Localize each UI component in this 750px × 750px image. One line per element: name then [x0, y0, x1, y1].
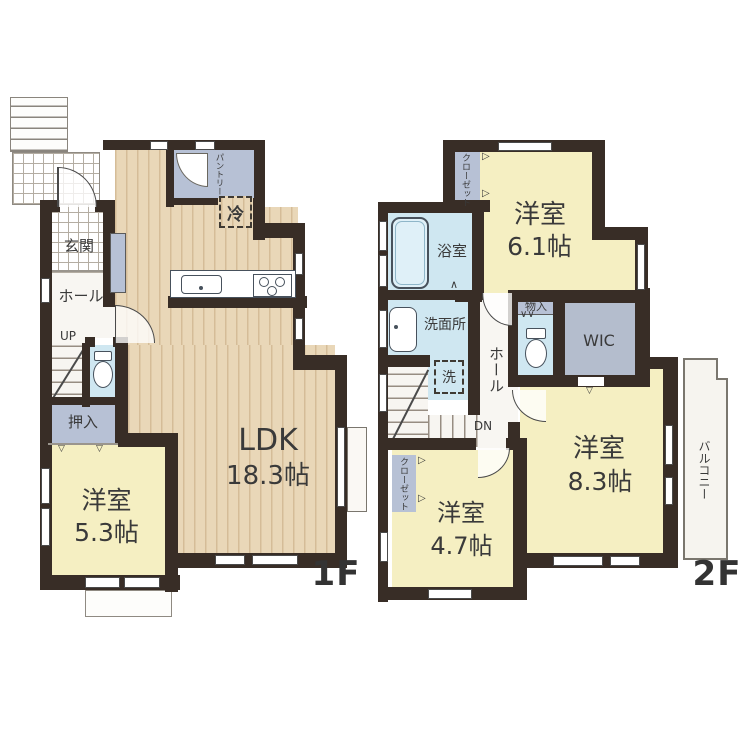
stove-burner [267, 286, 277, 296]
window [337, 427, 345, 507]
toilet-tank-2f [526, 328, 546, 339]
toilet-bowl-2f [525, 339, 547, 368]
floor-plan: ▽ ▽ 玄関 ホール UP 押入 洋室 5.3帖 LDK 18.3帖 パントリー… [0, 0, 750, 750]
room83-size: 8.3帖 [560, 466, 640, 494]
floor1-label: 1F [308, 554, 364, 594]
stove-burner [275, 277, 285, 287]
kitchen-sink [181, 275, 222, 294]
wall [455, 290, 482, 302]
toilet-door-gap [95, 338, 113, 345]
toilet-bowl-1f [93, 361, 113, 388]
window [379, 374, 387, 412]
closet-6-1-label: クローゼット [459, 153, 472, 205]
room83-name: 洋室 [566, 432, 632, 460]
window [665, 425, 673, 465]
wall [380, 355, 430, 367]
wic-label: WIC [574, 330, 624, 350]
stove-burner [259, 277, 269, 287]
window [41, 278, 50, 303]
window [215, 555, 245, 565]
window [195, 141, 215, 150]
room53-size: 5.3帖 [54, 517, 159, 544]
ldk-size: 18.3帖 [203, 459, 333, 488]
western-room-6-1-floor [592, 240, 637, 296]
window [380, 532, 388, 562]
ldk-floor [128, 398, 178, 438]
window [428, 589, 472, 599]
washroom-label: 洗面所 [414, 315, 476, 332]
ldk-name: LDK [216, 424, 320, 456]
wall [253, 223, 305, 238]
wall [383, 438, 476, 450]
window [553, 556, 603, 566]
wall [513, 450, 527, 600]
window [637, 244, 645, 290]
dn-label: DN [468, 419, 498, 433]
floor2-label: 2F [688, 554, 746, 594]
wic-door-gap [578, 377, 604, 386]
shoe-cabinet [110, 233, 126, 293]
bath-folding-door-marker: ∧ [450, 279, 458, 290]
balcony-label: バルコニー [697, 424, 713, 516]
genkan-step-line [48, 270, 103, 272]
wall [40, 397, 128, 405]
window [610, 556, 640, 566]
wic-door-marker: ▽ [586, 387, 593, 396]
window [124, 577, 160, 588]
window [295, 318, 303, 340]
wall [635, 288, 650, 387]
room61-name: 洋室 [495, 198, 585, 226]
pantry-label: パントリー [211, 151, 225, 197]
wall [118, 433, 178, 447]
oshiire-label: 押入 [54, 413, 112, 430]
window [150, 141, 168, 150]
wash-basin [389, 307, 417, 352]
wall [592, 140, 605, 240]
hall-2f-label: ホール [489, 338, 507, 402]
window [379, 310, 387, 348]
window [41, 468, 50, 504]
outside-step [85, 590, 172, 617]
room53-name: 洋室 [58, 485, 155, 512]
window [252, 555, 298, 565]
front-door-leaf [57, 167, 59, 207]
folding-door-marker: ▷ [482, 152, 490, 162]
window [379, 221, 387, 251]
closet-4-7-label: クローゼット [397, 457, 410, 509]
wall [165, 443, 178, 592]
sliding-door-marker: ▽ [96, 445, 103, 454]
hall-label: ホール [50, 286, 112, 304]
window [41, 508, 50, 546]
window [498, 142, 552, 151]
wall [592, 227, 648, 240]
room47-size: 4.7帖 [425, 530, 498, 557]
storage-label: 物入 [517, 299, 555, 313]
bay-window [347, 427, 367, 512]
wall [115, 337, 128, 443]
balcony-step [683, 358, 718, 380]
folding-door-marker: ▷ [418, 456, 426, 466]
folding-door-marker: ▷ [418, 494, 426, 504]
toilet-tank-1f [94, 351, 112, 361]
room47-name: 洋室 [430, 497, 492, 524]
sink-faucet-dot [199, 286, 203, 290]
bath-label: 浴室 [428, 241, 476, 259]
folding-door-marker: ▷ [482, 189, 490, 199]
genkan-label: 玄関 [56, 236, 102, 254]
window [295, 253, 303, 275]
window [665, 477, 673, 505]
bathtub-inner [395, 221, 425, 285]
window [379, 255, 387, 287]
window [85, 577, 120, 588]
room61-size: 6.1帖 [492, 231, 587, 259]
wall [103, 140, 265, 150]
sliding-door-marker: ▽ [58, 445, 65, 454]
approach-steps [10, 97, 68, 152]
wall [468, 290, 480, 415]
up-label: UP [54, 329, 82, 343]
washer-label: 洗 [437, 366, 461, 388]
wall [508, 422, 520, 450]
basin-faucet-dot [394, 325, 398, 329]
fridge-label: 冷 [221, 199, 250, 225]
wall [293, 355, 347, 370]
